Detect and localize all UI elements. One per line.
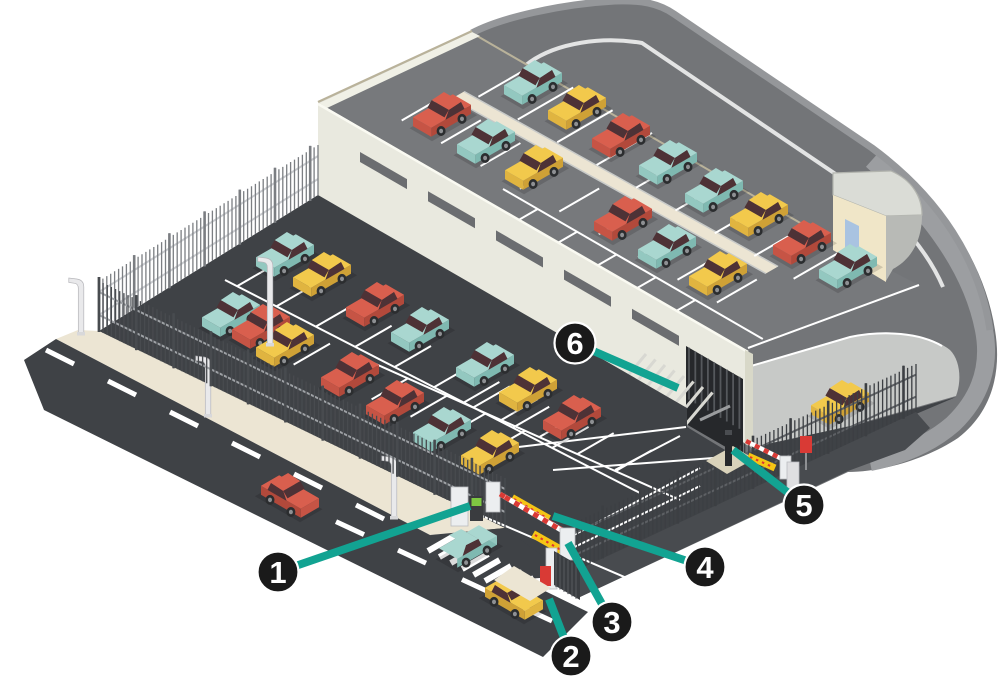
svg-text:4: 4 (696, 550, 714, 585)
svg-text:6: 6 (566, 326, 583, 361)
svg-text:1: 1 (269, 555, 286, 590)
svg-text:5: 5 (795, 488, 812, 523)
svg-text:2: 2 (562, 639, 579, 674)
svg-text:3: 3 (603, 605, 620, 640)
